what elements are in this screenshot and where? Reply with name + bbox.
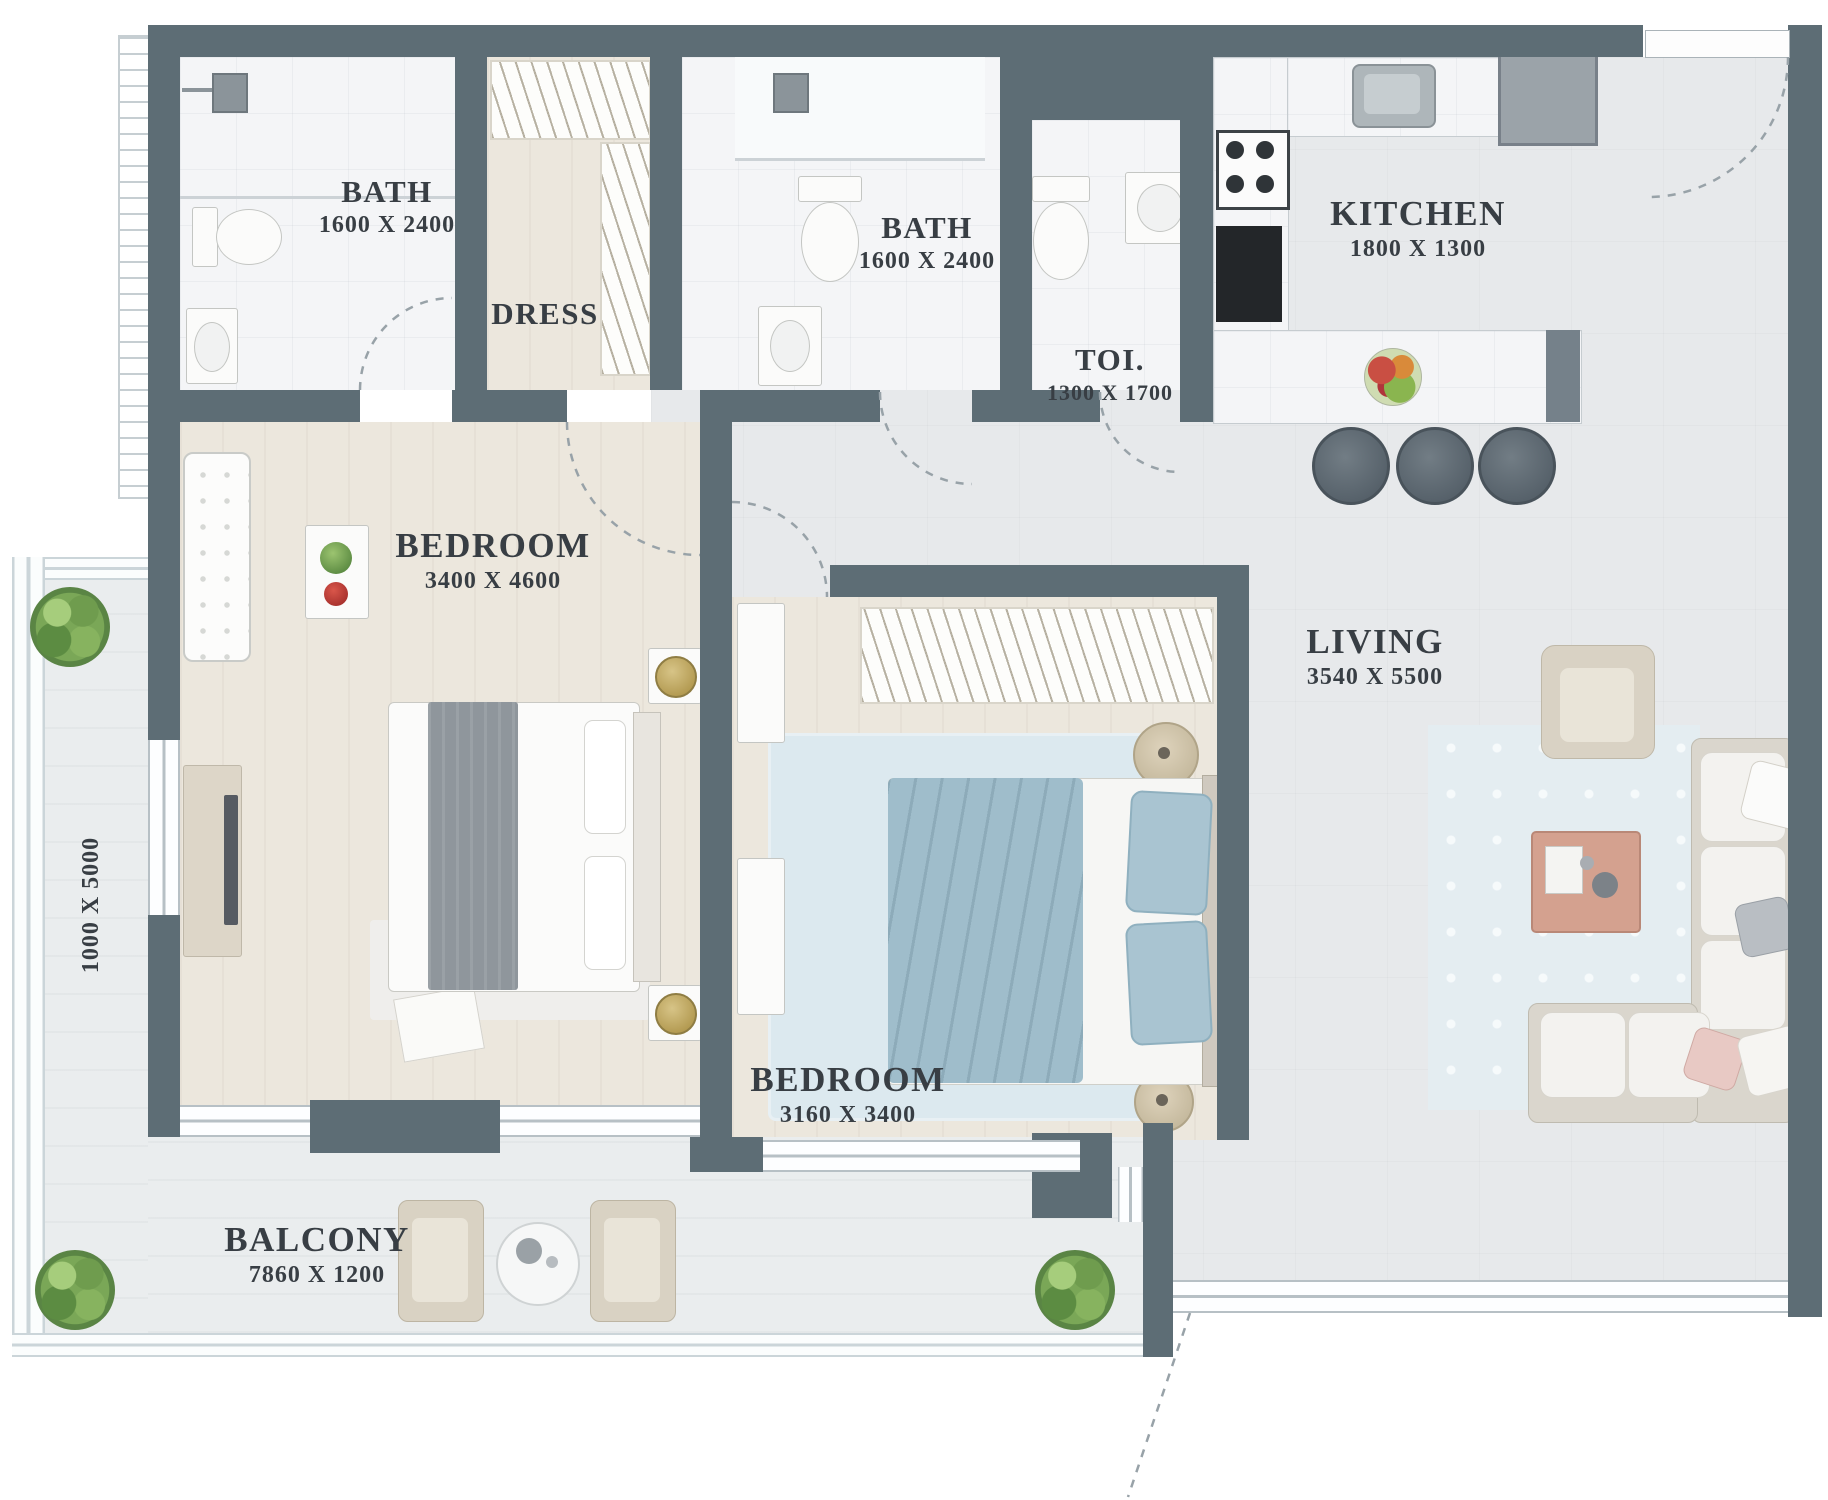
room-label-balcony: BALCONY 7860 X 1200 xyxy=(224,1222,410,1289)
bar-stool xyxy=(1312,427,1390,505)
burner xyxy=(1256,141,1274,159)
lamp-icon xyxy=(655,656,697,698)
magazine xyxy=(1545,846,1583,894)
room-label-bedroom1: BEDROOM 3400 X 4600 xyxy=(395,528,590,595)
wardrobe-hangers xyxy=(860,607,1214,704)
room-dims: 3400 X 4600 xyxy=(395,568,590,595)
sink-basin xyxy=(770,320,810,372)
wall xyxy=(700,422,732,1137)
room-name: BALCONY xyxy=(224,1222,410,1259)
refrigerator xyxy=(1498,48,1598,146)
wall xyxy=(1000,57,1032,390)
wall xyxy=(452,390,567,422)
toilet-tank xyxy=(192,207,218,267)
entrance-door xyxy=(1645,30,1790,58)
pouf-button xyxy=(1156,1094,1168,1106)
room-name: TOI. xyxy=(1047,344,1173,377)
wall xyxy=(650,57,682,390)
room-label-bath1: BATH 1600 X 2400 xyxy=(319,176,455,239)
burner xyxy=(1226,175,1244,193)
room-name: BATH xyxy=(859,212,995,245)
window xyxy=(180,1105,310,1137)
decor-bowl xyxy=(1592,872,1618,898)
toilet-tank xyxy=(798,176,862,202)
wall xyxy=(700,390,880,422)
wall xyxy=(148,25,180,740)
room-dims: 1800 X 1300 xyxy=(1330,236,1506,263)
pillow xyxy=(584,720,626,834)
island-end-panel xyxy=(1546,330,1580,422)
stove-icon xyxy=(1216,130,1290,210)
decor-cup xyxy=(1580,856,1594,870)
wall xyxy=(455,57,487,390)
tv-icon xyxy=(224,795,238,925)
dresser xyxy=(737,858,785,1015)
burner xyxy=(1226,141,1244,159)
wall xyxy=(1788,25,1822,1317)
dresser xyxy=(737,603,785,743)
cup-icon xyxy=(546,1256,558,1268)
wardrobe-hangers xyxy=(600,142,651,376)
black-counter xyxy=(1216,226,1282,322)
pouf-button xyxy=(1158,747,1170,759)
lamp-icon xyxy=(655,993,697,1035)
burner xyxy=(1256,175,1274,193)
window xyxy=(1118,1167,1143,1222)
pillow xyxy=(584,856,626,970)
room-label-bath2: BATH 1600 X 2400 xyxy=(859,212,995,275)
window xyxy=(148,740,180,915)
room-name: LIVING xyxy=(1306,624,1443,661)
wall xyxy=(830,565,1249,597)
wall xyxy=(310,1100,500,1153)
room-dims: 1600 X 2400 xyxy=(859,248,995,275)
bar-stool xyxy=(1396,427,1474,505)
balcony-rail xyxy=(12,1333,1143,1357)
wardrobe-hangers xyxy=(490,60,651,140)
toilet-icon xyxy=(1033,202,1089,280)
shower-head-icon xyxy=(212,73,248,113)
toilet-icon xyxy=(801,202,859,282)
plant-icon xyxy=(35,1250,115,1330)
plant-icon xyxy=(320,542,352,574)
wall xyxy=(1143,1123,1173,1357)
toilet-tank xyxy=(1032,176,1090,202)
plant-icon xyxy=(30,587,110,667)
floor-plan: BATH 1600 X 2400 DRESS BATH 1600 X 2400 … xyxy=(0,0,1828,1500)
wall xyxy=(148,915,180,1137)
room-label-side-balcony: 1000 X 5000 xyxy=(75,837,105,973)
bed-duvet xyxy=(888,778,1083,1083)
balcony-chair-cushion xyxy=(604,1218,660,1302)
wall xyxy=(972,390,1032,422)
room-dims: 1000 X 5000 xyxy=(78,837,105,973)
room-dims: 1300 X 1700 xyxy=(1047,380,1173,406)
bed-blanket xyxy=(428,702,518,990)
room-label-toilet: TOI. 1300 X 1700 xyxy=(1047,344,1173,406)
shower-arm xyxy=(182,88,214,92)
kitchen-sink-basin xyxy=(1364,74,1420,114)
room-label-dress: DRESS xyxy=(491,298,598,331)
wall xyxy=(148,25,1643,57)
sink-basin xyxy=(194,322,230,372)
armchair-cushion xyxy=(1560,668,1634,742)
room-name: KITCHEN xyxy=(1330,196,1506,233)
wall xyxy=(1032,57,1213,120)
pillow xyxy=(1125,920,1213,1046)
wall xyxy=(1217,565,1249,1140)
room-name: BEDROOM xyxy=(750,1062,945,1099)
sink-basin xyxy=(1137,184,1183,232)
window xyxy=(500,1105,700,1137)
bed-headboard xyxy=(633,712,661,982)
wall xyxy=(690,1137,763,1172)
sofa-cushion xyxy=(1700,940,1786,1030)
room-label-bedroom2: BEDROOM 3160 X 3400 xyxy=(750,1062,945,1129)
wall xyxy=(1180,120,1213,422)
shower-head-icon xyxy=(773,73,809,113)
room-dims: 7860 X 1200 xyxy=(224,1262,410,1289)
room-label-kitchen: KITCHEN 1800 X 1300 xyxy=(1330,196,1506,263)
room-name: BATH xyxy=(319,176,455,209)
ac-ledge xyxy=(118,35,152,499)
teapot-icon xyxy=(516,1238,542,1264)
room-dims: 3540 X 5500 xyxy=(1306,664,1443,691)
flower-pot-icon xyxy=(324,582,348,606)
room-label-living: LIVING 3540 X 5500 xyxy=(1306,624,1443,691)
balcony-rail xyxy=(12,557,45,1357)
room-dims: 3160 X 3400 xyxy=(750,1102,945,1129)
plant-icon xyxy=(1035,1250,1115,1330)
room-dims: 1600 X 2400 xyxy=(319,212,455,239)
bar-stool xyxy=(1478,427,1556,505)
window xyxy=(1173,1280,1788,1313)
toilet-icon xyxy=(216,209,282,265)
bedroom1-sofa xyxy=(183,452,251,662)
pillow xyxy=(1125,790,1213,916)
wall xyxy=(180,390,360,422)
room-name: DRESS xyxy=(491,298,598,331)
balcony-chair-cushion xyxy=(412,1218,468,1302)
window xyxy=(763,1140,1080,1172)
room-name: BEDROOM xyxy=(395,528,590,565)
fruit-bowl-icon xyxy=(1364,348,1422,406)
balcony-table xyxy=(496,1222,580,1306)
sofa-cushion xyxy=(1540,1012,1626,1098)
